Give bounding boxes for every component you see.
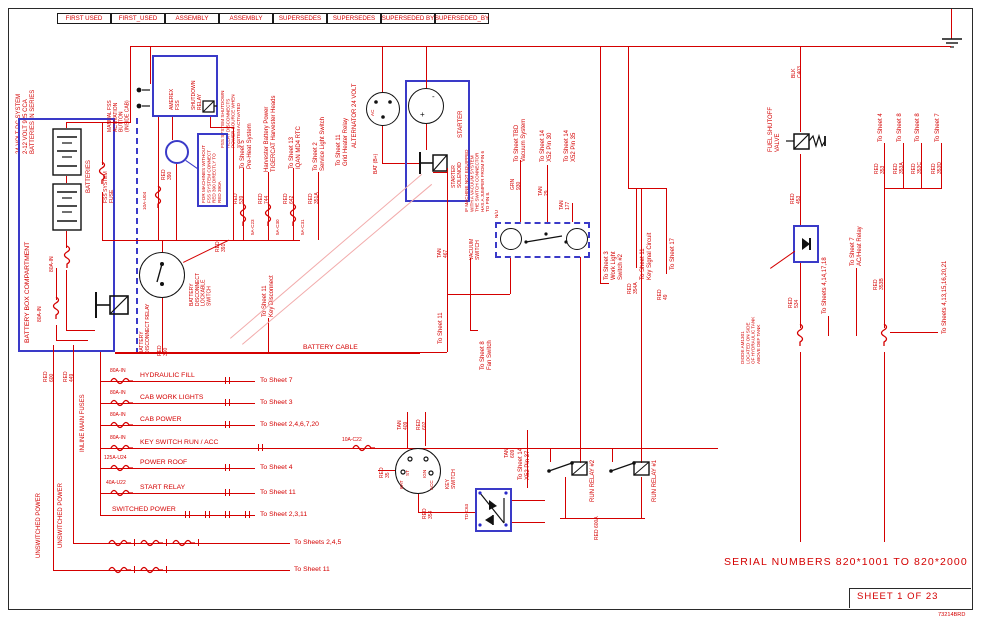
wire (510, 258, 511, 294)
wire (229, 421, 230, 428)
wire (100, 352, 101, 515)
fuse-row-name: POWER ROOF (140, 459, 187, 467)
fuse-icon (108, 565, 132, 575)
wire-red49: RED 49 (658, 276, 670, 300)
wire (426, 124, 427, 150)
unswitched-power-label-1: UNSWITCHED POWER (36, 466, 43, 558)
exit-ac-heat: To Sheet 7 AC/Heat Relay (850, 204, 864, 266)
wire (130, 46, 951, 47)
wire-blk-c403: BLK C403 (792, 52, 804, 78)
wire (56, 325, 57, 340)
manual-fss-button-label: MANUAL FSS ACTIVATION BUTTON (INSIDE CAB… (108, 50, 131, 132)
wire (512, 522, 545, 523)
wire (470, 258, 471, 330)
document-number-text: 73214BRD (938, 612, 965, 618)
schematic-page: FIRST USED FIRST_USED ASSEMBLY ASSEMBLY … (0, 0, 981, 630)
wire (628, 188, 666, 189)
vacuum-contacts (522, 230, 572, 246)
alternator-bat-label: BAT (B+) (374, 132, 380, 174)
fuse-row-dest: To Sheet 11 (260, 489, 296, 497)
fuse-icon (352, 443, 376, 453)
fss-note-text: FOR MACHINES WITHOUT FSS SYSTEM CONNECT … (201, 137, 222, 203)
fuse-row-amp: 80A-IN (110, 413, 126, 419)
wire (565, 477, 566, 518)
wire (166, 539, 167, 546)
wire (856, 268, 857, 336)
wire (849, 588, 971, 589)
key-terminal-acc: ACC (429, 474, 434, 490)
fuse-icon (110, 376, 134, 386)
wire (66, 176, 67, 183)
fuse-icon (110, 488, 134, 498)
wire (134, 539, 135, 546)
starter-solenoid-label: STARTER SOLENOID (452, 150, 464, 188)
fuse-5a-c23: 5A-C23 (250, 207, 255, 235)
vacuum-switch-label: VACUUM SWITCH (470, 226, 482, 260)
wire (225, 399, 226, 406)
wire (941, 143, 942, 188)
alternator-label: ALTERNATOR 24 VOLT (352, 64, 359, 148)
wire (447, 294, 510, 295)
wire (162, 240, 163, 252)
starter-plus: + (420, 110, 425, 119)
fuse-icon (110, 398, 134, 408)
wire (229, 399, 230, 406)
battery-box-label: BATTERY BOX COMPARTMENT (24, 178, 32, 343)
wire (229, 464, 230, 471)
battery-cable-label: BATTERY CABLE (303, 344, 358, 352)
exit-vacuum-tbd: To Sheet TBD Vacuum System (514, 86, 528, 162)
battery-icon (52, 128, 82, 176)
wire (641, 188, 642, 463)
run-relay-1-label: RUN RELAY #1 (652, 440, 659, 502)
wire (102, 192, 103, 240)
battery-icon (52, 183, 82, 231)
header-cell-first-used-2: FIRST_USED (111, 13, 165, 24)
exit-sheet4: To Sheet 4 (878, 92, 885, 142)
exit-sheets-4-13-15: To Sheets 4,13,15,16,20,21 (942, 224, 949, 334)
wire (225, 464, 226, 471)
wire (420, 352, 447, 353)
fss-button-icon (134, 84, 152, 114)
wire (903, 143, 904, 188)
bottom-exit-dest: To Sheet 11 (294, 566, 330, 574)
exit-service-light: To Sheet 2 Service Light Switch (313, 95, 327, 171)
wire (641, 477, 642, 518)
wire-tan467: TAN 467 (438, 234, 450, 258)
wire (433, 172, 447, 173)
exit-work-light: To Sheet 3 Work Light Switch #2 (604, 220, 625, 280)
wire (210, 117, 211, 127)
wire (245, 511, 246, 518)
wire-red354a: RED 354A (628, 268, 640, 294)
fuse-icon (97, 161, 107, 185)
wire (225, 489, 226, 496)
wire (176, 164, 177, 240)
fuse-row-name: CAB WORK LIGHTS (140, 394, 203, 402)
fuse-icon (238, 203, 248, 227)
fuse-icon (110, 463, 134, 473)
wire (951, 9, 952, 39)
fuse-icon (795, 323, 805, 347)
exit-iqan: To Sheet 13 IQAN MD4 RTC (289, 93, 303, 169)
wire (229, 489, 230, 496)
starter-minus: - (432, 92, 435, 101)
exit-sheets-4-14-17-18: To Sheets 4,14,17,18 (822, 210, 829, 314)
fuse-icon (153, 185, 163, 209)
serial-numbers-text: SERIAL NUMBERS 820*1001 TO 820*2000 (724, 556, 968, 568)
wire-red642: RED 642 (284, 180, 296, 204)
wire (470, 330, 478, 331)
wire (426, 46, 427, 88)
run-relay-2-label: RUN RELAY #2 (590, 440, 597, 502)
fuse-icon (110, 443, 134, 453)
wire (884, 188, 885, 328)
fuse-10a-u04-label: 10A-U04 (142, 182, 147, 210)
fuse-row-name: CAB POWER (140, 416, 182, 424)
wire (53, 570, 290, 571)
wire-red453: RED 453 (791, 180, 803, 204)
wire-tan609: TAN 609 (505, 434, 517, 458)
wire-red449: RED 449 (64, 356, 76, 382)
header-cell-assembly: ASSEMBLY (165, 13, 219, 24)
wire (134, 566, 135, 573)
wire (166, 566, 167, 573)
exit-key-signal: To Sheet 11 Key Signal Circuit (640, 204, 654, 280)
wire (600, 283, 609, 284)
wire (921, 143, 922, 188)
fuse-row-amp: 80A-IN (110, 436, 126, 442)
to-sheet-11-vertical: To Sheet 11 (438, 296, 445, 344)
wire-tan29: TAN 29 (539, 172, 551, 196)
fuse-icon (140, 565, 164, 575)
fuse-row-name: HYDRAULIC FILL (140, 372, 195, 380)
wire-red600: RED 600 (44, 356, 56, 382)
fuse-row-name: KEY SWITCH RUN / ACC (140, 439, 218, 447)
fuse-icon (172, 538, 196, 548)
wire (828, 316, 829, 336)
header-cell-supersedes: SUPERSEDES (273, 13, 327, 24)
fuse-5a-c30: 5A-C30 (275, 207, 280, 235)
fuse-80a-label: 80A-IN (50, 246, 56, 272)
wire (225, 421, 226, 428)
fuse-80a-label-2: 80A-IN (38, 296, 44, 322)
exit-grid-heater: To Sheet 11 Grid Heater Relay (336, 98, 350, 166)
wire (512, 500, 545, 501)
wire-red539: RED 539 (234, 180, 246, 204)
wire (225, 377, 226, 384)
diode-note: DIODE AM1301 LOCATED ON SIDE OF HYDRAULI… (740, 266, 761, 364)
key-terminal-st: ST (405, 462, 410, 476)
header-cell-superseded-by-2: SUPERSEDED_BY (435, 13, 489, 24)
wire (56, 268, 57, 300)
wire-red602: RED 602 (417, 406, 429, 430)
wire (849, 588, 850, 608)
wire (884, 188, 942, 189)
fuse-icon (288, 203, 298, 227)
exit-x52-pin35: To Sheet 14 X52 Pin 35 (564, 92, 578, 162)
wire (382, 126, 383, 163)
diode-icon (799, 237, 813, 251)
wire (666, 188, 667, 274)
fuel-valve-icon (786, 130, 828, 154)
wire-red744: RED 744 (259, 180, 271, 204)
unswitched-power-label-2: UNSWITCHED POWER (58, 456, 65, 548)
wire-red600a: RED 600A (595, 500, 601, 540)
ground-icon (942, 38, 962, 50)
wire (572, 203, 573, 222)
exit-sheet8a: To Sheet 8 (897, 92, 904, 142)
wire (418, 494, 419, 512)
fuse-row-amp: 80A-IN (110, 391, 126, 397)
wire (229, 377, 230, 384)
fuse-row-dest: To Sheet 2,3,11 (260, 511, 307, 519)
fuse-5a-c31: 5A-C31 (300, 207, 305, 235)
wire (198, 539, 199, 546)
header-cell-supersedes-2: SUPERSEDES (327, 13, 381, 24)
wire (262, 444, 263, 451)
exit-sheet7: To Sheet 7 (935, 92, 942, 142)
wire (66, 122, 67, 128)
exit-x52-pin30: To Sheet 14 X52 Pin 30 (540, 92, 554, 162)
fuse-row-dest: To Sheet 4 (260, 464, 293, 472)
wire (225, 511, 226, 518)
header-cell-first-used: FIRST USED (57, 13, 111, 24)
wire (150, 46, 151, 84)
wire (102, 122, 103, 165)
wire-red354: RED 354 (423, 495, 435, 519)
wire (800, 46, 801, 132)
fuse-row-amp: 80A-IN (110, 369, 126, 375)
wire (600, 46, 601, 283)
battery-disconnect-relay-icon (88, 290, 138, 320)
wire-nu: N/U (494, 202, 499, 218)
fuse-icon (62, 245, 72, 269)
fuse-row-name: START RELAY (140, 484, 185, 492)
wire (884, 352, 885, 542)
amerex-fss-label: AMEREX FSS (170, 62, 182, 110)
wire (580, 257, 581, 463)
run-relay-1-coil (633, 461, 651, 477)
diode-pack-label: TD-C63 (464, 490, 469, 520)
bottom-exit-dest: To Sheets 2,4,5 (294, 539, 341, 547)
wire (100, 515, 255, 516)
exit-preheat: To Sheet 5 Pre-Heat System (240, 93, 254, 169)
wire (890, 332, 938, 333)
fuel-shutoff-valve-label: FUEL SHUTOFF VALVE (768, 96, 782, 152)
key-switch-label: KEY SWITCH (446, 455, 458, 489)
wire-red35: RED 35 (380, 456, 392, 478)
batteries-label: BATTERIES (86, 148, 93, 193)
wire (66, 270, 67, 330)
wire (158, 117, 159, 240)
wire-red353b: RED 353B (874, 262, 886, 290)
wire-red351a: RED 351A (309, 178, 321, 204)
exit-sheet8b: To Sheet 8 (915, 92, 922, 142)
fuse-row-dest: To Sheet 7 (260, 377, 293, 385)
key-terminal-ign: IGN (422, 462, 427, 478)
exit-sheet17: To Sheet 17 (670, 222, 677, 270)
wire (249, 511, 250, 518)
fuse-icon (263, 203, 273, 227)
inline-main-fuses-label: INLINE MAIN FUSES (80, 380, 87, 452)
sheet-number-text: SHEET 1 OF 23 (857, 591, 938, 602)
wire (636, 188, 637, 268)
exit-fan-switch: To Sheet 8 Fan Switch (480, 314, 494, 370)
battery-disconnect-switch-lever (139, 252, 185, 298)
wire (102, 240, 300, 241)
wire (258, 444, 259, 451)
fuse-icon (140, 538, 164, 548)
wire (800, 352, 801, 542)
wire (162, 298, 163, 352)
fuse-row-dest: To Sheet 2,4,6,7,20 (260, 421, 319, 429)
vacuum-switch-icon-1 (500, 228, 522, 250)
wire-tan409: TAN 409 (398, 406, 410, 430)
wire-grn930: GRN 930 (511, 166, 523, 190)
header-cell-superseded-by: SUPERSEDED BY (381, 13, 435, 24)
wire (136, 118, 138, 354)
fuse-icon (110, 420, 134, 430)
wire (209, 511, 210, 518)
wire (628, 46, 629, 188)
wire (560, 518, 645, 519)
wire (447, 168, 448, 352)
fuse-row-name: SWITCHED POWER (112, 506, 176, 514)
wire (210, 127, 233, 128)
fuse-icon (879, 323, 889, 347)
wire (56, 340, 88, 341)
alternator-ac-label: AC (370, 104, 375, 116)
wire (115, 352, 420, 354)
wire (229, 511, 230, 518)
starter-motor-icon (408, 88, 444, 124)
fuse-row-dest: To Sheet 3 (260, 399, 293, 407)
wire (382, 46, 383, 92)
fuse-icon (108, 538, 132, 548)
wire (172, 117, 173, 140)
wire (205, 511, 206, 518)
header-cell-assembly-2: ASSEMBLY (219, 13, 273, 24)
fuse-row-amp: 40A-U22 (106, 481, 126, 487)
key-terminal-bat: BAT (399, 473, 404, 489)
shutdown-relay-icon (202, 100, 218, 114)
wire (66, 330, 95, 331)
wire (884, 143, 885, 188)
wire (189, 511, 190, 518)
wire-red534: RED 534 (789, 282, 801, 308)
exit-x52-pin37: To Sheet 14 X52 Pin 37 (518, 418, 532, 480)
diode-pack-icons (477, 490, 510, 530)
run-relay-2-coil (571, 461, 589, 477)
fuse-row-amp: 125A-U24 (104, 456, 127, 462)
wire (185, 511, 186, 518)
wire (378, 470, 395, 471)
wire-tan177: TAN 177 (560, 186, 572, 210)
exit-harvester: Harvester Battery Power TIGERCAT Harvest… (264, 86, 278, 172)
vacuum-note: IF MACHINE NOT EQUIPPED WITH A VACUUM SY… (464, 128, 490, 212)
